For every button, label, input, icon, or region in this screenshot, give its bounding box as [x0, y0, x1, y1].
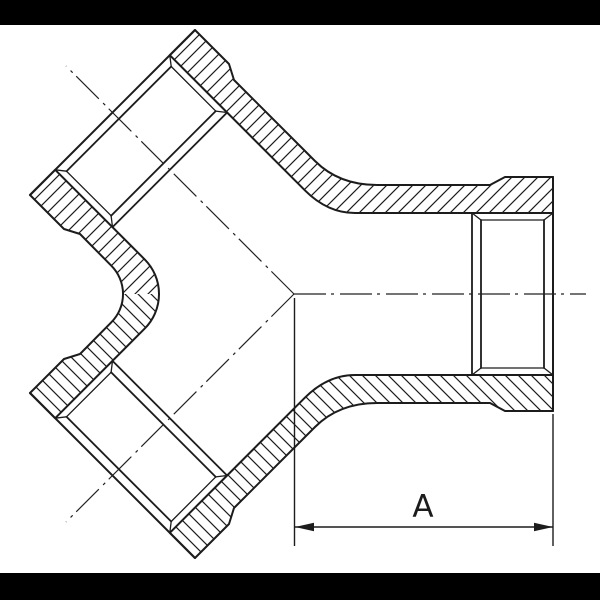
letterbox-bottom — [0, 573, 600, 600]
technical-drawing: A — [0, 0, 600, 600]
dimension-label: A — [412, 489, 433, 525]
technical-drawing-page: A — [0, 0, 600, 600]
letterbox-top — [0, 0, 600, 25]
